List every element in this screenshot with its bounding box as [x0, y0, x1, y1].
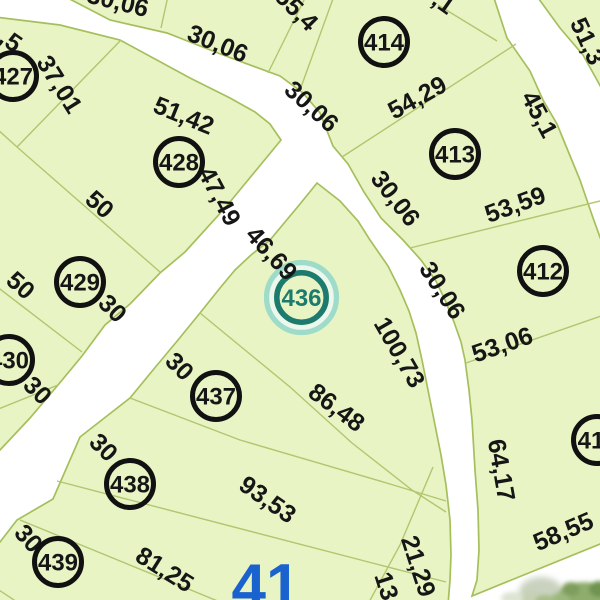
svg-text:411: 411 [578, 428, 600, 455]
svg-text:429: 429 [60, 270, 100, 297]
svg-text:436: 436 [281, 285, 321, 312]
svg-text:414: 414 [364, 30, 405, 57]
svg-text:428: 428 [159, 150, 199, 177]
svg-text:439: 439 [38, 550, 78, 577]
svg-text:413: 413 [435, 142, 475, 169]
svg-text:437: 437 [196, 384, 236, 411]
svg-text:438: 438 [110, 472, 150, 499]
svg-text:412: 412 [523, 259, 563, 286]
svg-text:430: 430 [0, 348, 29, 375]
svg-text:41: 41 [232, 552, 301, 600]
svg-text:427: 427 [0, 64, 33, 91]
